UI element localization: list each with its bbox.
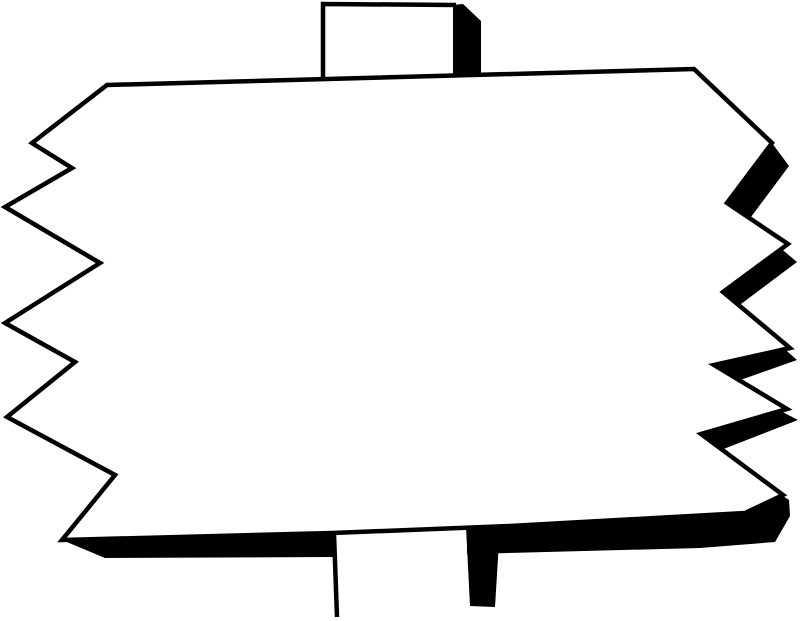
bottom-post-left-edge <box>334 534 337 617</box>
bottom-post-shadow <box>466 525 500 607</box>
top-post-shadow <box>453 4 481 74</box>
sign-board <box>5 69 790 540</box>
top-post-face <box>322 3 457 79</box>
sign-canvas <box>0 0 800 621</box>
bottom-post-face <box>333 528 467 621</box>
blank-sign-illustration <box>0 0 800 621</box>
